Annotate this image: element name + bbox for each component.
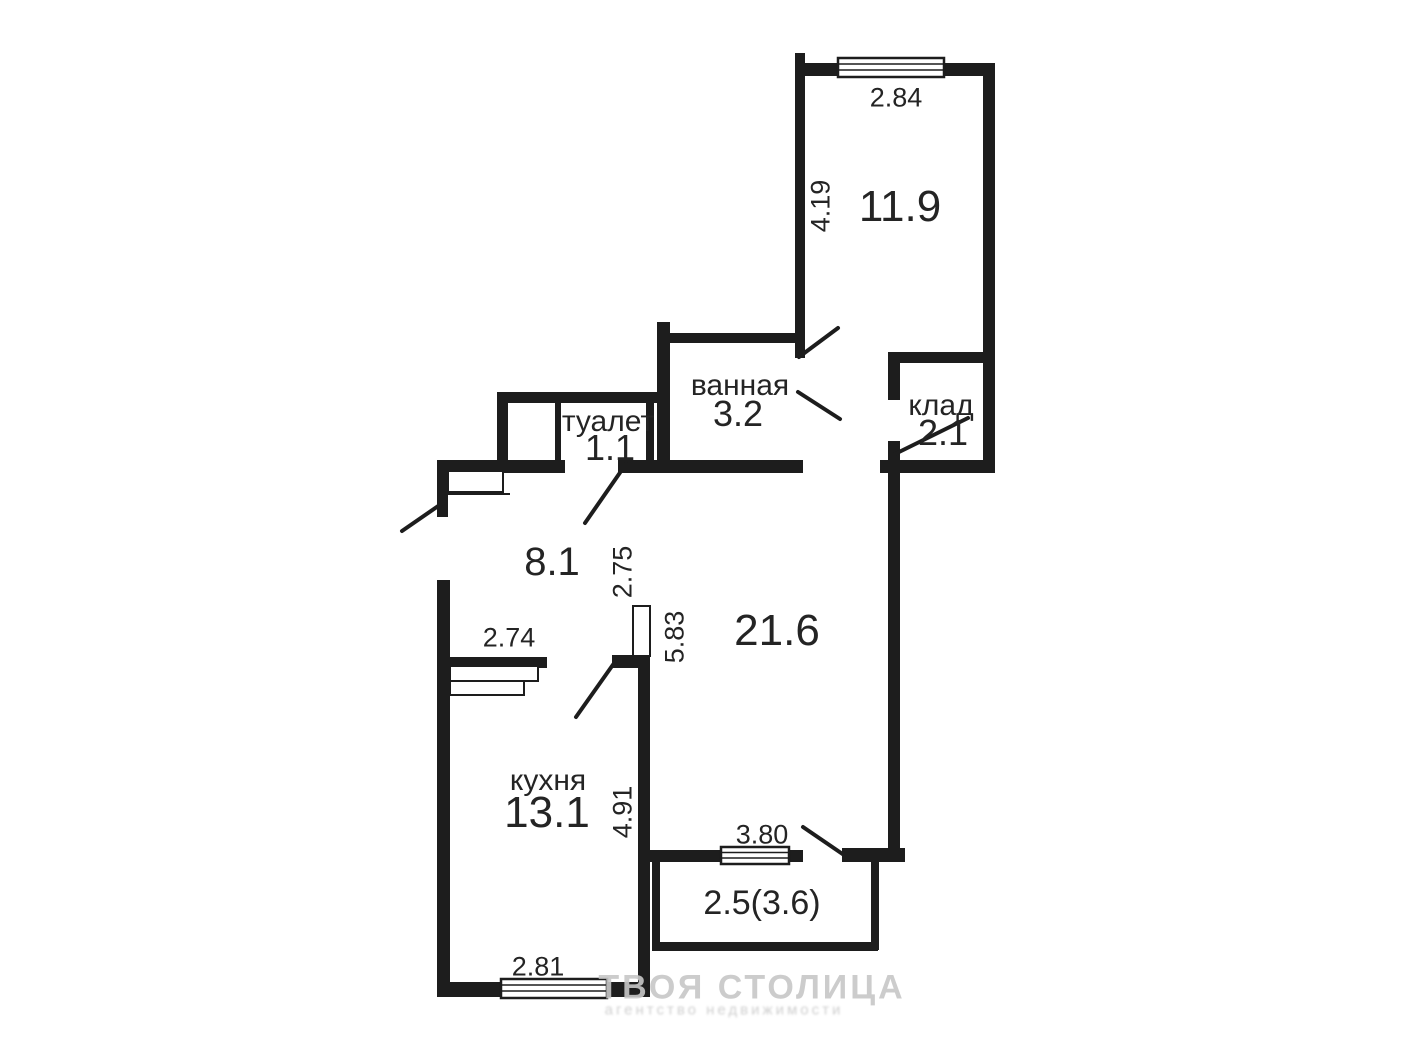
entry-niche bbox=[448, 471, 503, 492]
door-balcony bbox=[803, 827, 844, 855]
hallway-area-label: 8.1 bbox=[524, 542, 580, 582]
wall-entry-upper bbox=[437, 460, 448, 517]
wall-bath-top bbox=[657, 333, 799, 343]
bedroom-height-dim: 4.19 bbox=[808, 180, 835, 233]
hallway-height-dim: 2.75 bbox=[610, 546, 637, 599]
wall-toilet-top bbox=[498, 392, 665, 403]
wall-kitchen-divider bbox=[638, 655, 650, 997]
wall-shaft-divider bbox=[555, 403, 561, 461]
toilet-area-label: 1.1 bbox=[585, 430, 635, 466]
wall-living-bottom-c bbox=[842, 848, 905, 862]
vent-shaft bbox=[633, 606, 650, 656]
kitchen-top-width-dim: 2.74 bbox=[483, 625, 536, 652]
living-area-label: 21.6 bbox=[734, 609, 820, 653]
door-kitchen bbox=[576, 659, 617, 717]
kitchen-height-dim: 4.91 bbox=[610, 786, 637, 839]
wall-bath-bottom bbox=[657, 460, 803, 473]
watermark-subtitle: агентство недвижимости bbox=[605, 1002, 844, 1019]
floor-plan: 11.9 2.84 4.19 ванная 3.2 клад 2.1 туале… bbox=[0, 0, 1417, 1064]
window-balcony-door bbox=[721, 847, 789, 864]
wall-bedroom-left bbox=[795, 53, 805, 358]
living-height-dim: 5.83 bbox=[662, 611, 689, 664]
kitchen-counter-upper bbox=[450, 666, 538, 681]
wall-balcony-right bbox=[871, 862, 879, 950]
bathroom-area-label: 3.2 bbox=[713, 396, 763, 432]
wall-toilet-left bbox=[497, 392, 508, 462]
door-swings bbox=[402, 328, 968, 855]
kitchen-window-dim: 2.81 bbox=[512, 954, 565, 981]
wall-storage-left-upper bbox=[888, 352, 900, 400]
balcony-area-label: 2.5(3.6) bbox=[703, 886, 820, 920]
wall-living-right bbox=[888, 460, 900, 852]
kitchen-counter-lower bbox=[450, 681, 524, 695]
door-bathroom bbox=[798, 392, 840, 419]
wall-right-exterior bbox=[983, 63, 995, 473]
wall-storage-top bbox=[888, 352, 983, 363]
door-toilet bbox=[585, 464, 626, 523]
bedroom-width-dim: 2.84 bbox=[870, 85, 923, 112]
storage-area-label: 2.1 bbox=[918, 415, 968, 451]
wall-balcony-left bbox=[652, 862, 660, 950]
kitchen-area-label: 13.1 bbox=[504, 791, 590, 835]
wall-kitchen-left bbox=[437, 580, 450, 997]
window-kitchen bbox=[501, 979, 607, 998]
wall-living-bottom-a bbox=[650, 850, 723, 862]
window-bedroom bbox=[838, 58, 944, 77]
bedroom-area-label: 11.9 bbox=[859, 185, 941, 229]
wall-balcony-bottom bbox=[652, 942, 878, 951]
balcony-width-dim: 3.80 bbox=[736, 822, 789, 849]
